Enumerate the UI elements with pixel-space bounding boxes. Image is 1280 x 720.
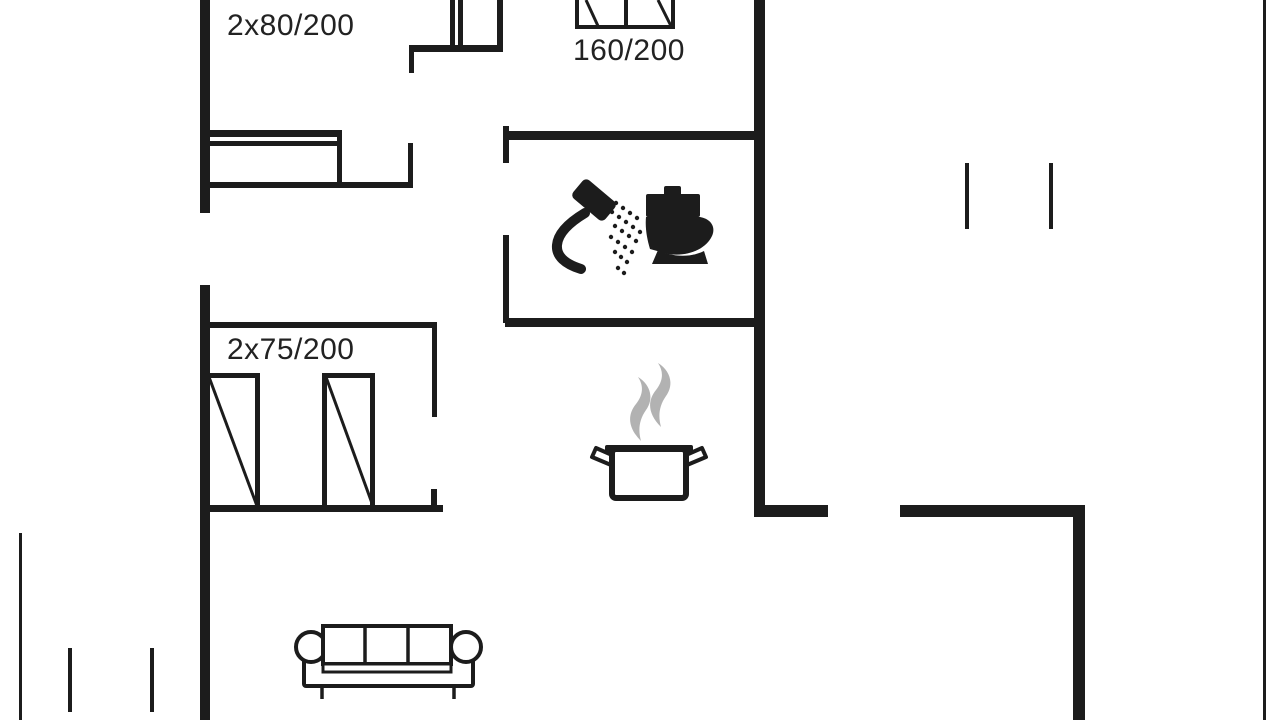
steam-icon (630, 363, 670, 441)
shower-spray-dots (609, 201, 642, 275)
cooking-pot-icon (592, 363, 706, 498)
single-bed-icon-diagonals (209, 377, 373, 506)
shower-icon (557, 177, 642, 275)
floorplan-canvas: 2x80/200 160/200 2x75/200 (0, 0, 1280, 720)
double-bed-icon-160-folds (586, 0, 671, 26)
toilet-icon (646, 186, 714, 264)
sofa-icon (296, 626, 481, 699)
plan-svg-overlay (0, 0, 1280, 720)
